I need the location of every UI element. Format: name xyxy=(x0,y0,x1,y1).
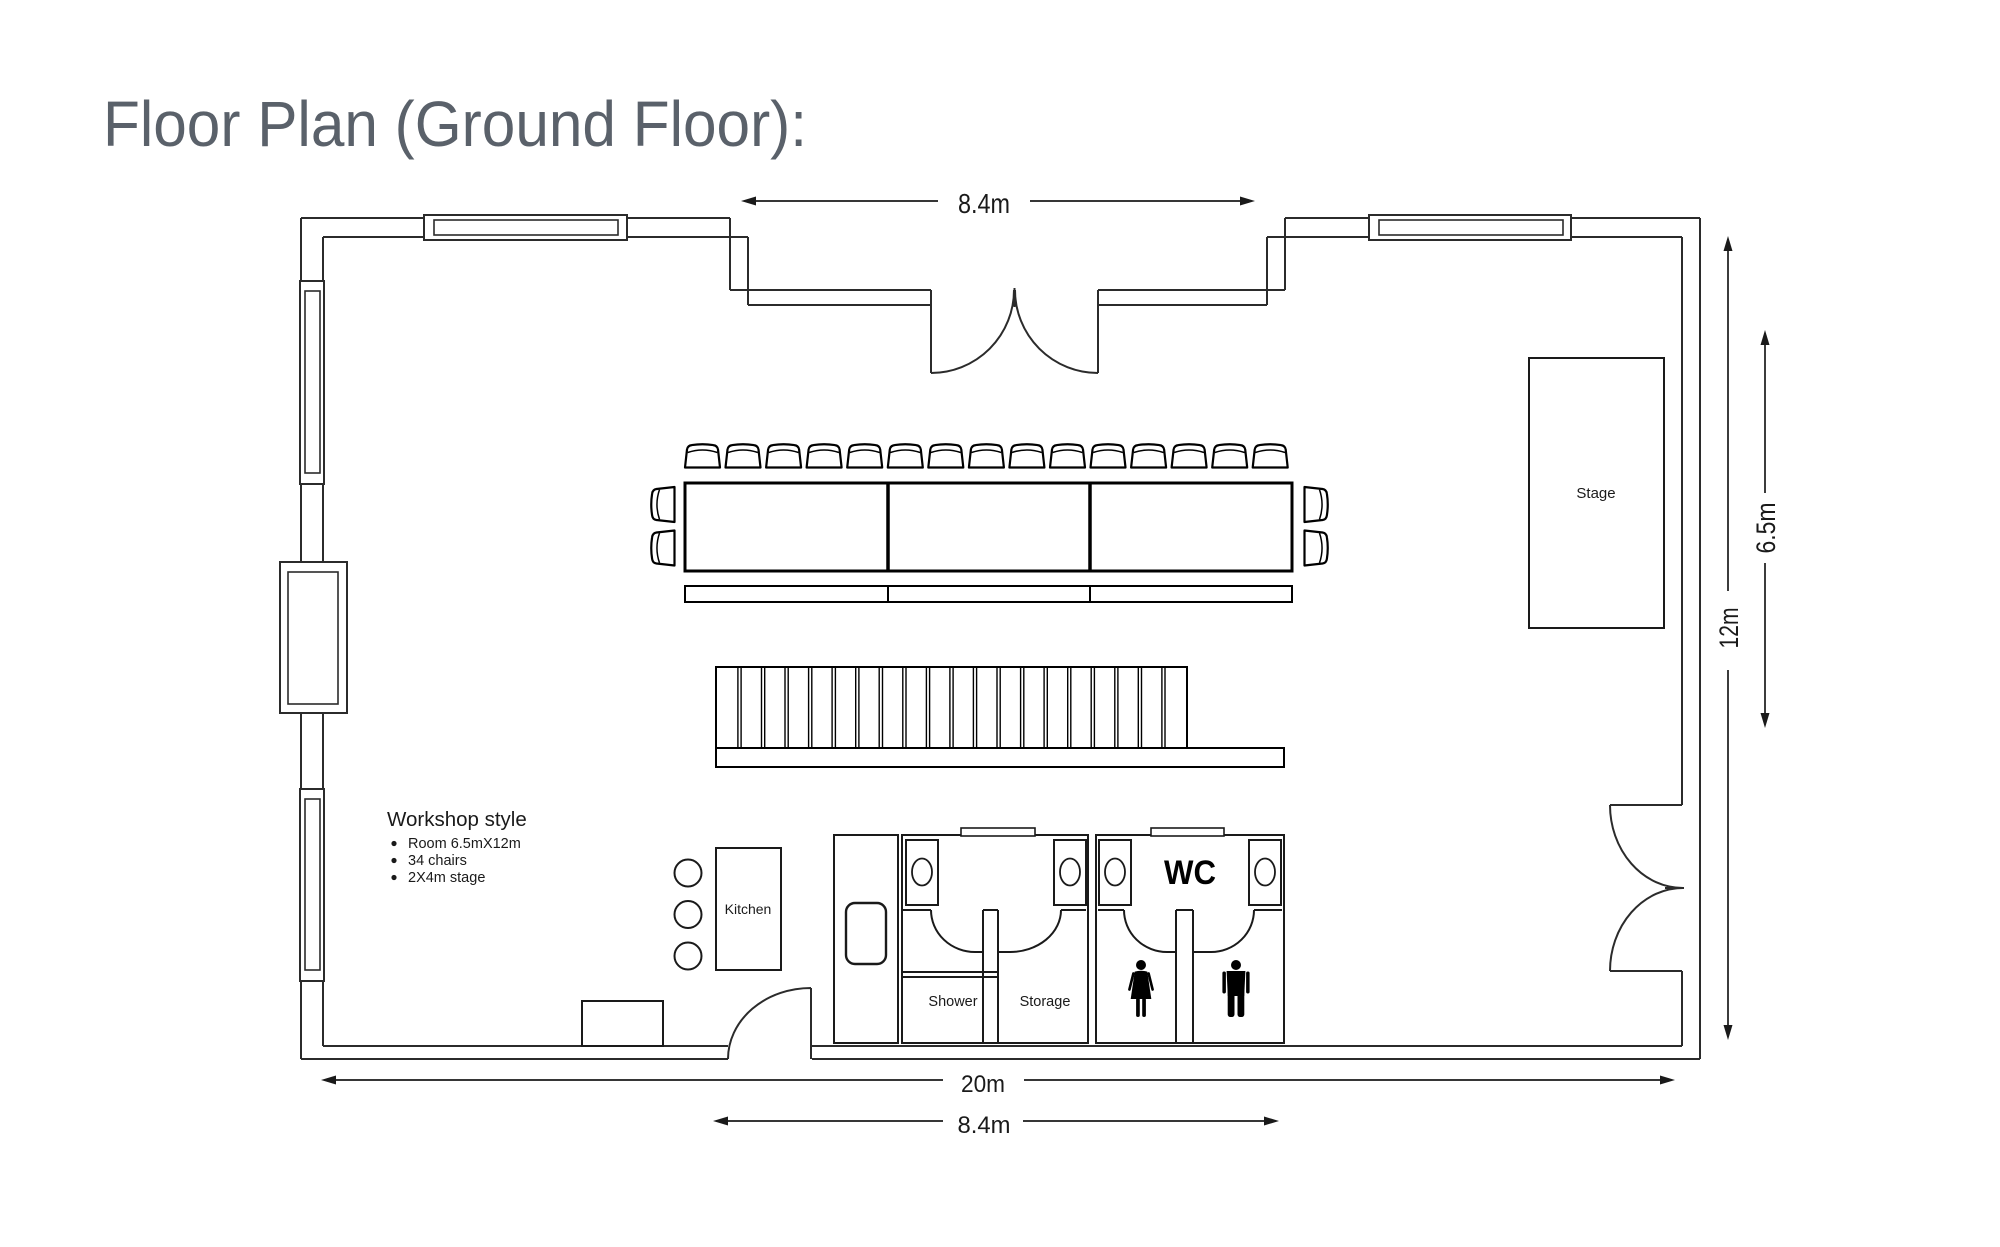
svg-text:6.5m: 6.5m xyxy=(1751,503,1781,554)
svg-text:Stage: Stage xyxy=(1576,485,1615,502)
svg-text:WC: WC xyxy=(1164,854,1216,892)
svg-text:Workshop style: Workshop style xyxy=(387,808,527,831)
svg-text:12m: 12m xyxy=(1714,608,1744,649)
svg-text:Storage: Storage xyxy=(1020,994,1071,1010)
svg-text:Shower: Shower xyxy=(928,994,977,1010)
svg-text:34 chairs: 34 chairs xyxy=(408,853,467,869)
svg-text:Kitchen: Kitchen xyxy=(725,901,772,917)
svg-text:20m: 20m xyxy=(961,1071,1005,1098)
svg-text:8.4m: 8.4m xyxy=(958,1112,1011,1139)
svg-text:Room 6.5mX12m: Room 6.5mX12m xyxy=(408,836,521,852)
svg-text:Floor Plan (Ground Floor):: Floor Plan (Ground Floor): xyxy=(103,88,807,160)
svg-text:2X4m stage: 2X4m stage xyxy=(408,870,485,886)
svg-text:8.4m: 8.4m xyxy=(958,188,1010,219)
